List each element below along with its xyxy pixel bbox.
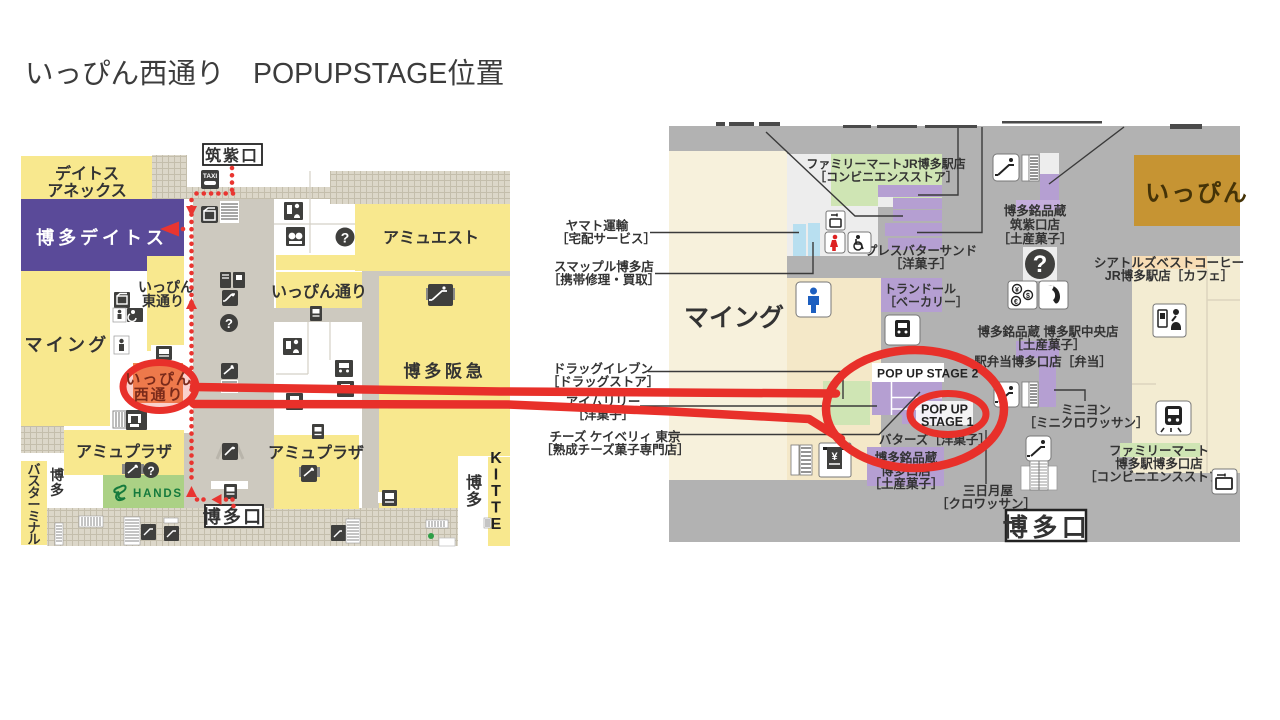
svg-text:シアトルズベストコーヒー: シアトルズベストコーヒー <box>1094 255 1244 270</box>
svg-text:JR博多駅店［カフェ］: JR博多駅店［カフェ］ <box>1105 268 1233 283</box>
svg-text:POP UP STAGE 2: POP UP STAGE 2 <box>877 367 979 381</box>
svg-text:［土産菓子］: ［土産菓子］ <box>868 476 943 491</box>
svg-text:?: ? <box>1033 251 1048 278</box>
svg-text:博多口: 博多口 <box>203 506 263 527</box>
svg-text:デイトス: デイトス <box>55 164 119 183</box>
svg-text:?: ? <box>225 316 233 331</box>
svg-text:いっぴん通り: いっぴん通り <box>271 282 367 301</box>
svg-text:博多: 博多 <box>50 467 64 498</box>
svg-text:いっぴん西通り POPUPSTAGE位置: いっぴん西通り POPUPSTAGE位置 <box>25 58 504 90</box>
svg-text:博多駅博多口店: 博多駅博多口店 <box>1115 456 1203 471</box>
svg-text:チーズ ケイベリィ 東京: チーズ ケイベリィ 東京 <box>549 429 681 444</box>
svg-text:¥: ¥ <box>1015 287 1019 294</box>
svg-text:¥: ¥ <box>831 451 838 463</box>
svg-text:［コンビニエンスストア］: ［コンビニエンスストア］ <box>1084 469 1234 484</box>
svg-text:［土産菓子］: ［土産菓子］ <box>997 231 1072 246</box>
svg-text:博多口: 博多口 <box>1003 514 1092 542</box>
svg-text:HANDS: HANDS <box>133 488 183 500</box>
svg-text:マイング: マイング <box>684 304 784 332</box>
svg-text:ファミリーマート: ファミリーマート <box>1109 444 1209 458</box>
svg-text:博多デイトス: 博多デイトス <box>36 227 168 248</box>
svg-text:［洋菓子］: ［洋菓子］ <box>890 256 953 271</box>
svg-text:プレスバターサンド: プレスバターサンド <box>865 243 977 258</box>
svg-text:?: ? <box>147 464 154 478</box>
svg-text:アネックス: アネックス <box>47 182 127 200</box>
svg-text:［携帯修理・買取］: ［携帯修理・買取］ <box>548 272 661 287</box>
svg-text:アミュプラザ: アミュプラザ <box>76 442 172 461</box>
svg-text:アミュエスト: アミュエスト <box>383 230 479 247</box>
svg-text:STAGE 1: STAGE 1 <box>921 415 974 429</box>
svg-text:トランドール: トランドール <box>884 282 956 296</box>
svg-text:［ミニクロワッサン］: ［ミニクロワッサン］ <box>1023 415 1148 430</box>
svg-text:ドラッグイレブン: ドラッグイレブン <box>553 361 653 376</box>
svg-text:バスターミナル: バスターミナル <box>27 462 40 547</box>
svg-text:駅弁当博多口店［弁当］: 駅弁当博多口店［弁当］ <box>973 354 1112 369</box>
svg-text:KITTE: KITTE <box>490 450 502 533</box>
svg-text:€: € <box>1014 299 1018 306</box>
svg-text:博多: 博多 <box>466 473 482 509</box>
svg-text:博多阪急: 博多阪急 <box>404 361 487 381</box>
svg-text:?: ? <box>341 230 350 246</box>
svg-text:博多銘品蔵 博多駅中央店: 博多銘品蔵 博多駅中央店 <box>978 324 1119 339</box>
svg-text:スマップル博多店: スマップル博多店 <box>554 259 654 274</box>
svg-text:西通り: 西通り <box>134 387 184 404</box>
svg-text:いっぴん: いっぴん <box>1145 180 1249 207</box>
svg-text:［土産菓子］: ［土産菓子］ <box>1010 337 1085 352</box>
svg-text:アミュプラザ: アミュプラザ <box>268 443 364 462</box>
svg-text:ヤマト運輸: ヤマト運輸 <box>566 218 629 233</box>
svg-text:ミニヨン: ミニヨン <box>1061 403 1111 417</box>
svg-text:いっぴん: いっぴん <box>125 371 192 388</box>
svg-text:［熟成チーズ菓子専門店］: ［熟成チーズ菓子専門店］ <box>540 442 689 457</box>
svg-text:筑紫口店: 筑紫口店 <box>1010 217 1061 232</box>
svg-text:ファミリーマートJR博多駅店: ファミリーマートJR博多駅店 <box>806 156 965 171</box>
svg-text:［ドラッグストア］: ［ドラッグストア］ <box>547 374 660 389</box>
svg-text:東通り: 東通り <box>142 293 184 309</box>
svg-text:三日月屋: 三日月屋 <box>963 483 1014 498</box>
svg-text:［宅配サービス］: ［宅配サービス］ <box>556 231 656 246</box>
svg-text:博多銘品蔵: 博多銘品蔵 <box>1004 203 1067 218</box>
svg-text:$: $ <box>1026 293 1030 300</box>
svg-text:筑紫口: 筑紫口 <box>205 146 259 165</box>
svg-text:マイング: マイング <box>25 334 110 355</box>
svg-text:［コンビニエンスストア］: ［コンビニエンスストア］ <box>814 169 958 184</box>
svg-text:［ベーカリー］: ［ベーカリー］ <box>884 294 968 309</box>
svg-text:TAXI: TAXI <box>203 173 218 180</box>
